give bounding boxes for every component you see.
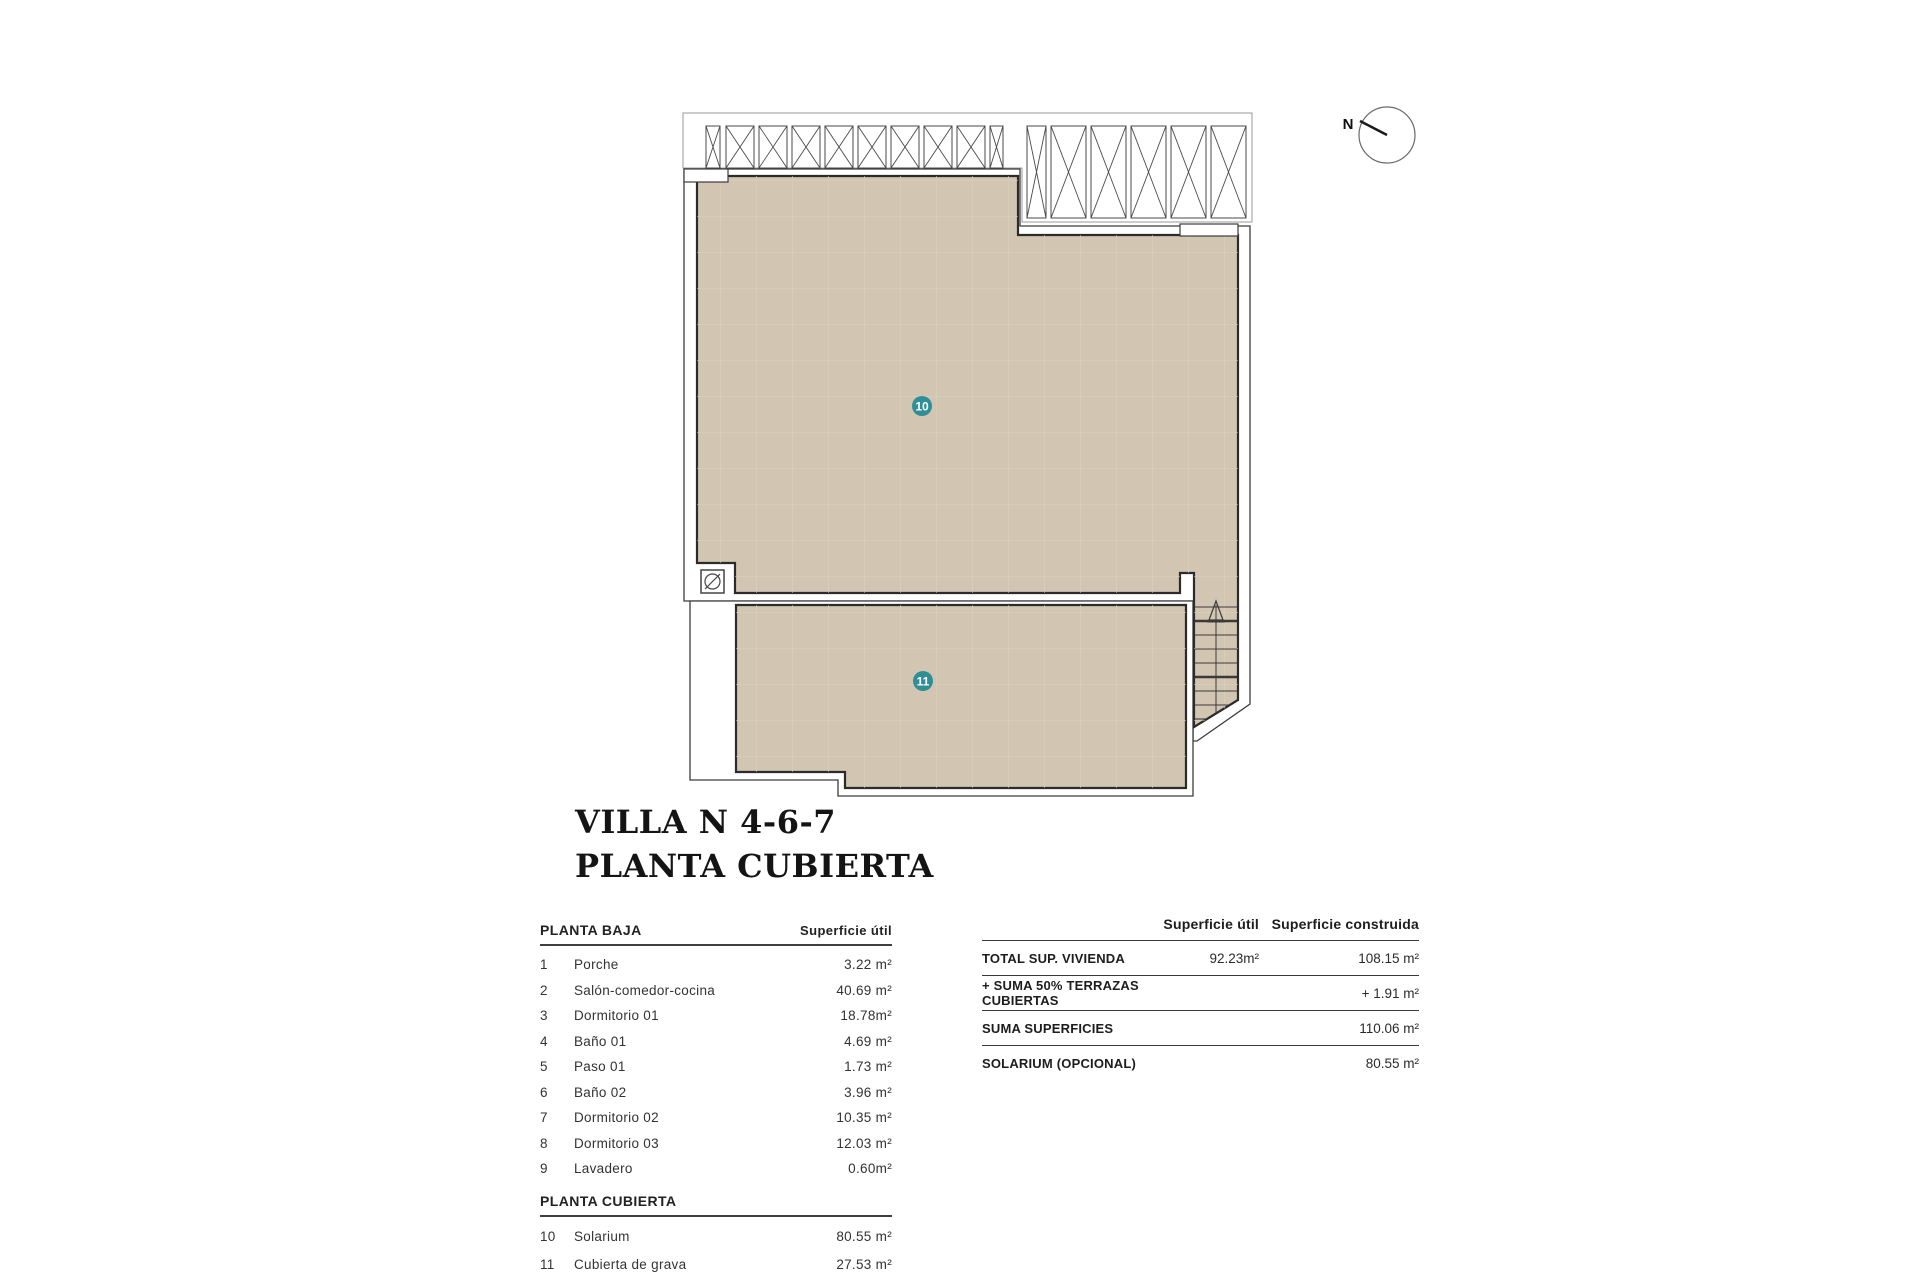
value-column-header: Superficie útil <box>800 923 892 938</box>
planta-baja-rows: 1Porche3.22 m² 2Salón-comedor-cocina40.6… <box>540 946 892 1182</box>
floor-plan-drawing: 10 11 N <box>0 0 1920 1280</box>
table-row: TOTAL SUP. VIVIENDA 92.23m² 108.15 m² <box>982 941 1419 976</box>
compass-needle-icon <box>1360 121 1387 135</box>
drain-symbol <box>701 570 724 593</box>
roof-area-gravel-grid <box>736 605 1186 788</box>
table-row: 5Paso 011.73 m² <box>540 1054 892 1080</box>
compass-north-label: N <box>1343 116 1354 133</box>
table-row: 10Solarium80.55 m² <box>540 1223 892 1251</box>
totals-table-header: Superficie útil Superficie construida <box>982 910 1419 941</box>
col-header-superficie-util: Superficie útil <box>1141 916 1259 932</box>
table-row: 1Porche3.22 m² <box>540 952 892 978</box>
table-row: SUMA SUPERFICIES 110.06 m² <box>982 1011 1419 1046</box>
table-row: 3Dormitorio 0118.78m² <box>540 1003 892 1029</box>
totals-table: Superficie útil Superficie construida TO… <box>982 910 1419 1080</box>
table-row: 4Baño 014.69 m² <box>540 1029 892 1055</box>
table-row: 9Lavadero0.60m² <box>540 1156 892 1182</box>
pergola-beams-right <box>1027 126 1246 218</box>
planta-cubierta-rows: 10Solarium80.55 m² 11Cubierta de grava27… <box>540 1217 892 1279</box>
col-header-superficie-construida: Superficie construida <box>1267 916 1419 932</box>
table-row: 7Dormitorio 0210.35 m² <box>540 1105 892 1131</box>
table-row: SOLARIUM (OPCIONAL) 80.55 m² <box>982 1046 1419 1080</box>
section-title: PLANTA BAJA <box>540 922 642 938</box>
section-header-planta-baja: PLANTA BAJA Superficie útil <box>540 914 892 946</box>
marker-area-10: 10 <box>912 396 932 416</box>
plan-title-line2: PLANTA CUBIERTA <box>575 844 934 888</box>
marker-area-11: 11 <box>913 671 933 691</box>
north-compass: N <box>1343 107 1415 163</box>
floor-plan-sheet: 10 11 N VILLA N 4-6-7 PLANTA CUBIERTA PL… <box>0 0 1920 1280</box>
section-title: PLANTA CUBIERTA <box>540 1193 676 1209</box>
table-row: 2Salón-comedor-cocina40.69 m² <box>540 978 892 1004</box>
parapet-step-top-left <box>684 169 728 182</box>
table-row: 11Cubierta de grava27.53 m² <box>540 1251 892 1279</box>
surfaces-table: PLANTA BAJA Superficie útil 1Porche3.22 … <box>540 914 892 1279</box>
plan-title: VILLA N 4-6-7 PLANTA CUBIERTA <box>575 800 934 888</box>
table-row: 6Baño 023.96 m² <box>540 1080 892 1106</box>
parapet-step-top-right <box>1180 224 1238 236</box>
marker-11-label: 11 <box>917 675 930 689</box>
table-row: + SUMA 50% TERRAZAS CUBIERTAS + 1.91 m² <box>982 976 1419 1011</box>
marker-10-label: 10 <box>915 400 929 414</box>
table-row: 8Dormitorio 0312.03 m² <box>540 1131 892 1157</box>
plan-title-line1: VILLA N 4-6-7 <box>575 800 934 844</box>
section-header-planta-cubierta: PLANTA CUBIERTA <box>540 1185 892 1217</box>
